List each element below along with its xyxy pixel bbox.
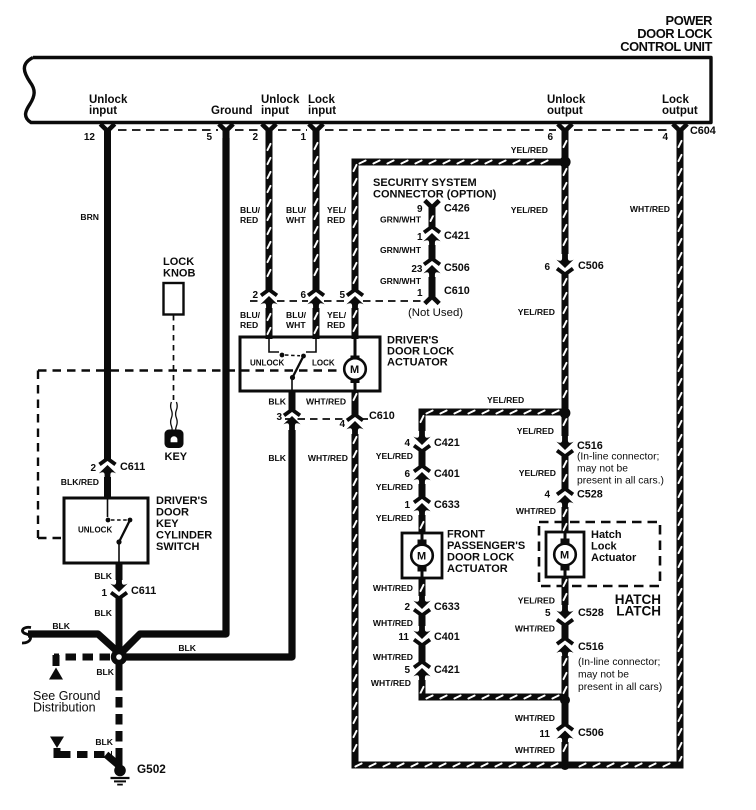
svg-text:2: 2	[90, 463, 96, 474]
svg-text:(In-line connector;: (In-line connector;	[578, 657, 660, 668]
svg-text:may not be: may not be	[577, 464, 628, 475]
svg-text:1: 1	[417, 232, 423, 243]
svg-text:C426: C426	[444, 203, 470, 215]
svg-text:GRN/WHT: GRN/WHT	[380, 245, 422, 255]
svg-text:6: 6	[544, 262, 550, 273]
svg-text:KNOB: KNOB	[163, 268, 195, 280]
svg-text:BLK/RED: BLK/RED	[61, 477, 99, 487]
svg-text:9: 9	[417, 204, 423, 215]
svg-text:1: 1	[404, 500, 410, 511]
svg-text:M: M	[350, 364, 359, 376]
svg-text:SECURITY SYSTEM: SECURITY SYSTEM	[373, 177, 477, 189]
svg-text:WHT/RED: WHT/RED	[516, 506, 556, 516]
svg-text:Lock: Lock	[591, 541, 618, 553]
svg-text:3: 3	[276, 412, 282, 423]
svg-text:Ground: Ground	[211, 105, 253, 117]
svg-text:C528: C528	[578, 607, 604, 619]
svg-text:WHT/RED: WHT/RED	[373, 583, 413, 593]
svg-text:6: 6	[404, 469, 410, 480]
svg-text:BLK: BLK	[268, 397, 286, 407]
svg-text:G502: G502	[137, 762, 166, 776]
svg-text:YEL/RED: YEL/RED	[487, 395, 524, 405]
svg-text:present in all cars.): present in all cars.)	[577, 476, 664, 487]
svg-text:output: output	[547, 105, 583, 117]
svg-text:Hatch: Hatch	[591, 529, 622, 541]
svg-text:5: 5	[339, 290, 345, 301]
svg-text:C506: C506	[578, 260, 604, 272]
svg-text:BLK: BLK	[94, 571, 112, 581]
svg-text:SWITCH: SWITCH	[156, 541, 199, 553]
svg-text:DRIVER'S: DRIVER'S	[156, 495, 208, 507]
svg-text:WHT: WHT	[286, 215, 306, 225]
svg-text:2: 2	[404, 602, 410, 613]
svg-text:C516: C516	[577, 440, 603, 452]
svg-text:4: 4	[404, 438, 410, 449]
svg-text:BRN: BRN	[80, 212, 99, 222]
svg-text:YEL/RED: YEL/RED	[518, 307, 555, 317]
svg-text:ACTUATOR: ACTUATOR	[447, 563, 508, 575]
svg-text:2: 2	[252, 290, 258, 301]
svg-text:C401: C401	[434, 631, 460, 643]
svg-text:input: input	[89, 105, 117, 117]
svg-text:RED: RED	[240, 215, 258, 225]
svg-text:YEL/RED: YEL/RED	[519, 468, 556, 478]
svg-text:DOOR LOCK: DOOR LOCK	[447, 552, 514, 564]
svg-text:LOCK: LOCK	[163, 256, 194, 268]
svg-text:11: 11	[398, 632, 409, 643]
svg-text:CONNECTOR (OPTION): CONNECTOR (OPTION)	[373, 189, 497, 201]
svg-text:CYLINDER: CYLINDER	[156, 530, 212, 542]
svg-text:RED: RED	[327, 320, 345, 330]
svg-text:WHT/RED: WHT/RED	[515, 745, 555, 755]
svg-text:C421: C421	[434, 437, 460, 449]
svg-text:BLK: BLK	[52, 621, 70, 631]
svg-text:YEL/RED: YEL/RED	[376, 513, 413, 523]
svg-text:C604: C604	[690, 125, 716, 137]
svg-text:KEY: KEY	[156, 518, 179, 530]
svg-text:BLK: BLK	[96, 667, 114, 677]
svg-text:4: 4	[662, 132, 668, 143]
svg-text:4: 4	[339, 419, 345, 430]
svg-text:YEL/RED: YEL/RED	[518, 596, 555, 606]
svg-text:C421: C421	[444, 230, 470, 242]
svg-text:PASSENGER'S: PASSENGER'S	[447, 540, 525, 552]
svg-text:WHT/RED: WHT/RED	[515, 624, 555, 634]
svg-text:C421: C421	[434, 664, 460, 676]
svg-text:KEY: KEY	[165, 451, 188, 463]
svg-text:6: 6	[547, 132, 553, 143]
svg-text:LOCK: LOCK	[312, 359, 335, 368]
svg-text:C401: C401	[434, 468, 460, 480]
svg-text:UNLOCK: UNLOCK	[250, 359, 284, 368]
svg-text:1: 1	[300, 132, 306, 143]
svg-text:BLK: BLK	[268, 453, 286, 463]
svg-text:BLK: BLK	[178, 643, 196, 653]
svg-text:2: 2	[252, 132, 258, 143]
svg-text:output: output	[662, 105, 698, 117]
svg-text:YEL/RED: YEL/RED	[511, 205, 548, 215]
svg-text:YEL/RED: YEL/RED	[376, 451, 413, 461]
svg-text:may not be: may not be	[578, 670, 629, 681]
svg-text:C506: C506	[578, 727, 604, 739]
svg-text:YEL/RED: YEL/RED	[517, 426, 554, 436]
svg-text:C506: C506	[444, 262, 470, 274]
svg-text:DOOR: DOOR	[156, 507, 189, 519]
svg-text:WHT/RED: WHT/RED	[373, 652, 413, 662]
svg-text:(In-line connector;: (In-line connector;	[577, 452, 659, 463]
svg-text:ACTUATOR: ACTUATOR	[387, 357, 448, 369]
svg-text:UNLOCK: UNLOCK	[78, 526, 112, 535]
svg-text:WHT/RED: WHT/RED	[306, 397, 346, 407]
svg-text:C633: C633	[434, 601, 460, 613]
svg-text:CONTROL UNIT: CONTROL UNIT	[620, 39, 712, 54]
svg-text:FRONT: FRONT	[447, 529, 485, 541]
svg-text:YEL/: YEL/	[327, 310, 347, 320]
svg-text:WHT/RED: WHT/RED	[515, 713, 555, 723]
svg-text:BLU/: BLU/	[286, 310, 307, 320]
svg-text:BLU/: BLU/	[286, 205, 307, 215]
svg-text:23: 23	[411, 264, 423, 275]
svg-text:C610: C610	[444, 285, 470, 297]
svg-text:(Not Used): (Not Used)	[408, 307, 463, 319]
svg-text:GRN/WHT: GRN/WHT	[380, 215, 422, 225]
svg-text:12: 12	[84, 132, 96, 143]
svg-text:YEL/RED: YEL/RED	[376, 482, 413, 492]
svg-text:C611: C611	[131, 585, 156, 597]
svg-text:LATCH: LATCH	[616, 604, 661, 619]
svg-text:WHT: WHT	[286, 320, 306, 330]
svg-text:YEL/: YEL/	[327, 205, 347, 215]
svg-text:WHT/RED: WHT/RED	[371, 678, 411, 688]
svg-text:BLU/: BLU/	[240, 205, 261, 215]
svg-text:WHT/RED: WHT/RED	[308, 453, 348, 463]
svg-text:RED: RED	[240, 320, 258, 330]
svg-text:C516: C516	[578, 641, 604, 653]
svg-text:C610: C610	[369, 410, 395, 422]
svg-text:WHT/RED: WHT/RED	[373, 618, 413, 628]
svg-text:input: input	[261, 105, 289, 117]
svg-text:YEL/RED: YEL/RED	[511, 145, 548, 155]
svg-text:BLK: BLK	[94, 608, 112, 618]
svg-text:present in all cars): present in all cars)	[578, 682, 662, 693]
svg-text:5: 5	[545, 608, 551, 619]
svg-text:BLK: BLK	[95, 737, 113, 747]
svg-text:1: 1	[417, 288, 423, 299]
svg-text:11: 11	[539, 729, 550, 740]
svg-text:C633: C633	[434, 499, 460, 511]
svg-text:5: 5	[206, 132, 212, 143]
svg-text:M: M	[417, 551, 426, 563]
svg-text:C611: C611	[120, 461, 145, 473]
svg-text:BLU/: BLU/	[240, 310, 261, 320]
svg-text:C528: C528	[577, 489, 603, 501]
svg-text:4: 4	[544, 490, 550, 501]
svg-text:1: 1	[101, 588, 107, 599]
svg-text:6: 6	[300, 290, 306, 301]
svg-text:input: input	[308, 105, 336, 117]
svg-text:5: 5	[404, 665, 410, 676]
svg-text:WHT/RED: WHT/RED	[630, 204, 670, 214]
svg-text:Actuator: Actuator	[591, 552, 637, 564]
svg-text:M: M	[560, 550, 569, 562]
svg-text:GRN/WHT: GRN/WHT	[380, 276, 422, 286]
svg-text:RED: RED	[327, 215, 345, 225]
svg-text:Distribution: Distribution	[33, 701, 96, 715]
